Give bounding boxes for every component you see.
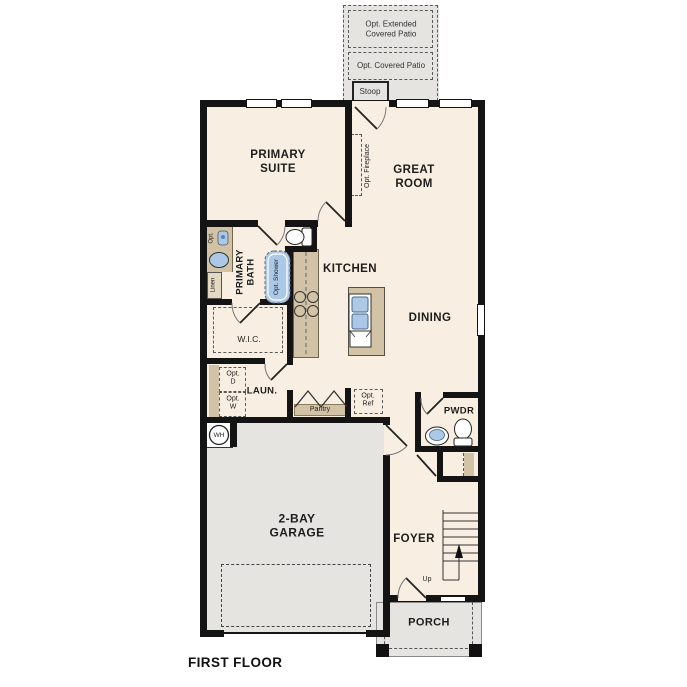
covered-patio-label: Opt. Covered Patio — [357, 61, 425, 71]
suite-door-swing — [318, 202, 326, 221]
garage-entry-door-swing — [386, 446, 407, 455]
stoop-door-leaf — [355, 107, 377, 129]
linework-overlay — [0, 0, 687, 687]
stairs-up-label: Up — [423, 576, 432, 584]
laundry-door-leaf — [271, 364, 287, 380]
powder-toilet-icon — [454, 419, 472, 446]
wic-door-leaf — [240, 303, 260, 323]
primary-bath-label: PRIMARY BATH — [235, 249, 258, 295]
extended-patio-label: Opt. Extended Covered Patio — [365, 19, 416, 38]
foyer-closet-door-leaf — [417, 455, 436, 476]
dining-label: DINING — [409, 312, 452, 326]
front-door-swing — [398, 578, 406, 598]
stair-up-arrow — [455, 544, 463, 558]
porch-label: PORCH — [408, 616, 450, 629]
pantry-label: Pantry — [310, 406, 330, 414]
stoop-label: Stoop — [360, 87, 381, 97]
opt-fireplace-label: Opt. Fireplace — [364, 144, 372, 188]
opt-shower-label: Opt. Shower — [273, 259, 281, 295]
suite-door-leaf — [326, 202, 345, 221]
floor-title: FIRST FLOOR — [188, 655, 282, 670]
stair-treads — [443, 510, 478, 580]
powder-door-leaf — [427, 398, 443, 414]
kitchen-label: KITCHEN — [323, 263, 377, 277]
wic-door-swing — [232, 303, 240, 323]
floor-plan: Opt. Extended Covered Patio Opt. Covered… — [0, 0, 687, 687]
garage-label: 2-BAY GARAGE — [269, 512, 324, 541]
wic-label: W.I.C. — [237, 334, 260, 344]
powder-label: PWDR — [444, 405, 474, 416]
opt-fixture-icon — [218, 231, 228, 245]
bath-toilet-icon — [286, 228, 312, 246]
opt-washer-label: Opt. W — [226, 396, 239, 413]
bath-door-swing — [277, 226, 285, 245]
opt-vanity-label: Opt. — [208, 232, 215, 243]
laundry-door-swing — [265, 364, 271, 380]
opt-refrigerator-label: Opt. Ref — [361, 393, 374, 410]
bath-door-leaf — [258, 226, 277, 245]
garage-entry-door-leaf — [386, 425, 407, 446]
foyer-label: FOYER — [393, 533, 435, 547]
dishwasher-box — [350, 331, 371, 347]
powder-door-swing — [421, 398, 427, 414]
pantry-bifold-doors — [295, 391, 347, 407]
primary-suite-label: PRIMARY SUITE — [250, 149, 305, 177]
linen-label: Linen — [210, 278, 217, 293]
great-room-label: GREAT ROOM — [393, 164, 434, 192]
vanity-sink-icon — [210, 253, 229, 268]
opt-dryer-label: Opt. D — [226, 371, 239, 388]
powder-sink-icon — [426, 427, 449, 445]
laundry-label: LAUN. — [247, 385, 278, 396]
stoop-door-swing — [377, 107, 386, 129]
water-heater-label: WH — [214, 432, 225, 440]
